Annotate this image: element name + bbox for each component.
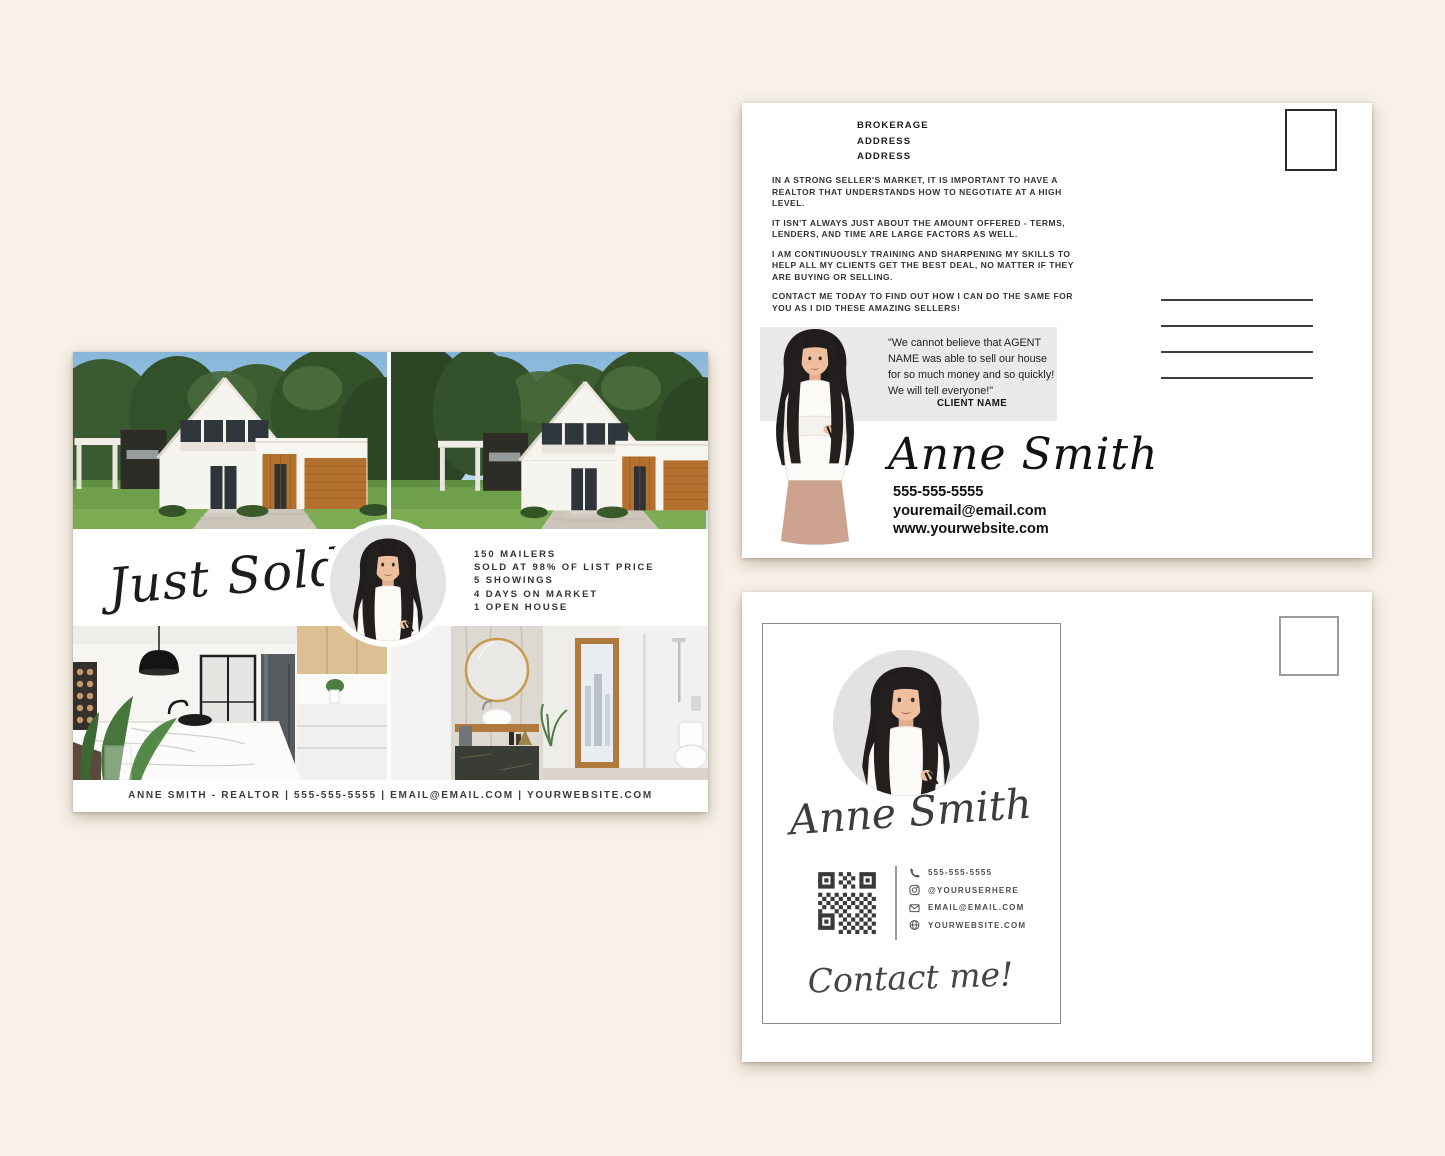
contact-instagram: @YOURUSERHERE [928, 886, 1019, 895]
postcard-front: Just Sold 150 MAILERS SOLD AT 98% OF LIS… [73, 352, 708, 812]
stat-days-on-market: 4 DAYS ON MARKET [474, 588, 655, 601]
stat-sold-price: SOLD AT 98% OF LIST PRICE [474, 561, 655, 574]
front-footer-contact-line: ANNE SMITH - REALTOR | 555-555-5555 | EM… [73, 780, 708, 812]
copy-paragraph-1: IN A STRONG SELLER'S MARKET, IT IS IMPOR… [772, 175, 1084, 210]
contact-phone: 555-555-5555 [928, 868, 992, 877]
instagram-icon [909, 884, 920, 896]
globe-icon [909, 919, 920, 931]
marketing-copy: IN A STRONG SELLER'S MARKET, IT IS IMPOR… [772, 175, 1084, 322]
contact-details-list: 555-555-5555 @YOURUSERHERE EMAIL@EMAIL.C… [909, 864, 1026, 934]
contact-row-email: EMAIL@EMAIL.COM [909, 899, 1026, 917]
agent-photo-circle-contact [833, 650, 979, 796]
agent-portrait-illustration [330, 525, 446, 641]
testimonial-quote: "We cannot believe that AGENT NAME was a… [888, 335, 1056, 399]
stat-showings: 5 SHOWINGS [474, 574, 655, 587]
recipient-address-line-4 [1161, 377, 1313, 379]
envelope-icon [909, 902, 920, 914]
kitchen-illustration [73, 626, 387, 780]
agent-photo-cutout [744, 312, 886, 558]
contact-divider [895, 866, 897, 940]
contact-website: YOURWEBSITE.COM [928, 921, 1026, 930]
agent-signature-name: Anne Smith [888, 429, 1158, 480]
qr-code [814, 868, 880, 934]
contact-row-instagram: @YOURUSERHERE [909, 882, 1026, 900]
house-illustration-1 [73, 352, 387, 529]
postcard-contact: Anne Smith 55 [742, 592, 1372, 1062]
house-photo-left [73, 352, 387, 529]
contact-row-website: YOURWEBSITE.COM [909, 917, 1026, 935]
contact-email: EMAIL@EMAIL.COM [928, 903, 1024, 912]
stamp-box-small [1279, 616, 1339, 676]
testimonial-client-name: CLIENT NAME [895, 397, 1050, 409]
recipient-address-line-3 [1161, 351, 1313, 353]
copy-paragraph-4: CONTACT ME TODAY TO FIND OUT HOW I CAN D… [772, 291, 1084, 314]
house-photo-right [391, 352, 708, 529]
recipient-address-line-2 [1161, 325, 1313, 327]
copy-paragraph-2: IT ISN'T ALWAYS JUST ABOUT THE AMOUNT OF… [772, 218, 1084, 241]
phone-icon [909, 867, 920, 879]
bathroom-photo [391, 626, 708, 780]
agent-portrait-illustration [833, 650, 979, 796]
qr-code-graphic [814, 868, 880, 934]
postcard-back: BROKERAGE ADDRESS ADDRESS IN A STRONG SE… [742, 103, 1372, 558]
contact-row-phone: 555-555-5555 [909, 864, 1026, 882]
front-stats-list: 150 MAILERS SOLD AT 98% OF LIST PRICE 5 … [474, 548, 655, 614]
agent-website: www.yourwebsite.com [893, 520, 1049, 539]
agent-phone: 555-555-5555 [893, 483, 1049, 502]
stamp-box [1285, 109, 1337, 171]
agent-photo-circle-front [324, 519, 452, 647]
recipient-address-line-1 [1161, 299, 1313, 301]
kitchen-photo [73, 626, 387, 780]
house-illustration-2 [391, 352, 708, 529]
agent-contact-block: 555-555-5555 youremail@email.com www.you… [893, 483, 1049, 539]
stat-open-house: 1 OPEN HOUSE [474, 601, 655, 614]
brokerage-line: BROKERAGE [857, 118, 929, 134]
address-line-1: ADDRESS [857, 134, 929, 150]
agent-standing-illustration [744, 312, 886, 558]
copy-paragraph-3: I AM CONTINUOUSLY TRAINING AND SHARPENIN… [772, 249, 1084, 284]
stat-mailers: 150 MAILERS [474, 548, 655, 561]
postcard-mockup-canvas: Just Sold 150 MAILERS SOLD AT 98% OF LIS… [0, 0, 1445, 1156]
brokerage-address-block: BROKERAGE ADDRESS ADDRESS [857, 118, 929, 165]
agent-email: youremail@email.com [893, 502, 1049, 521]
address-line-2: ADDRESS [857, 149, 929, 165]
bathroom-illustration [391, 626, 708, 780]
front-headline: Just Sold [101, 537, 350, 616]
